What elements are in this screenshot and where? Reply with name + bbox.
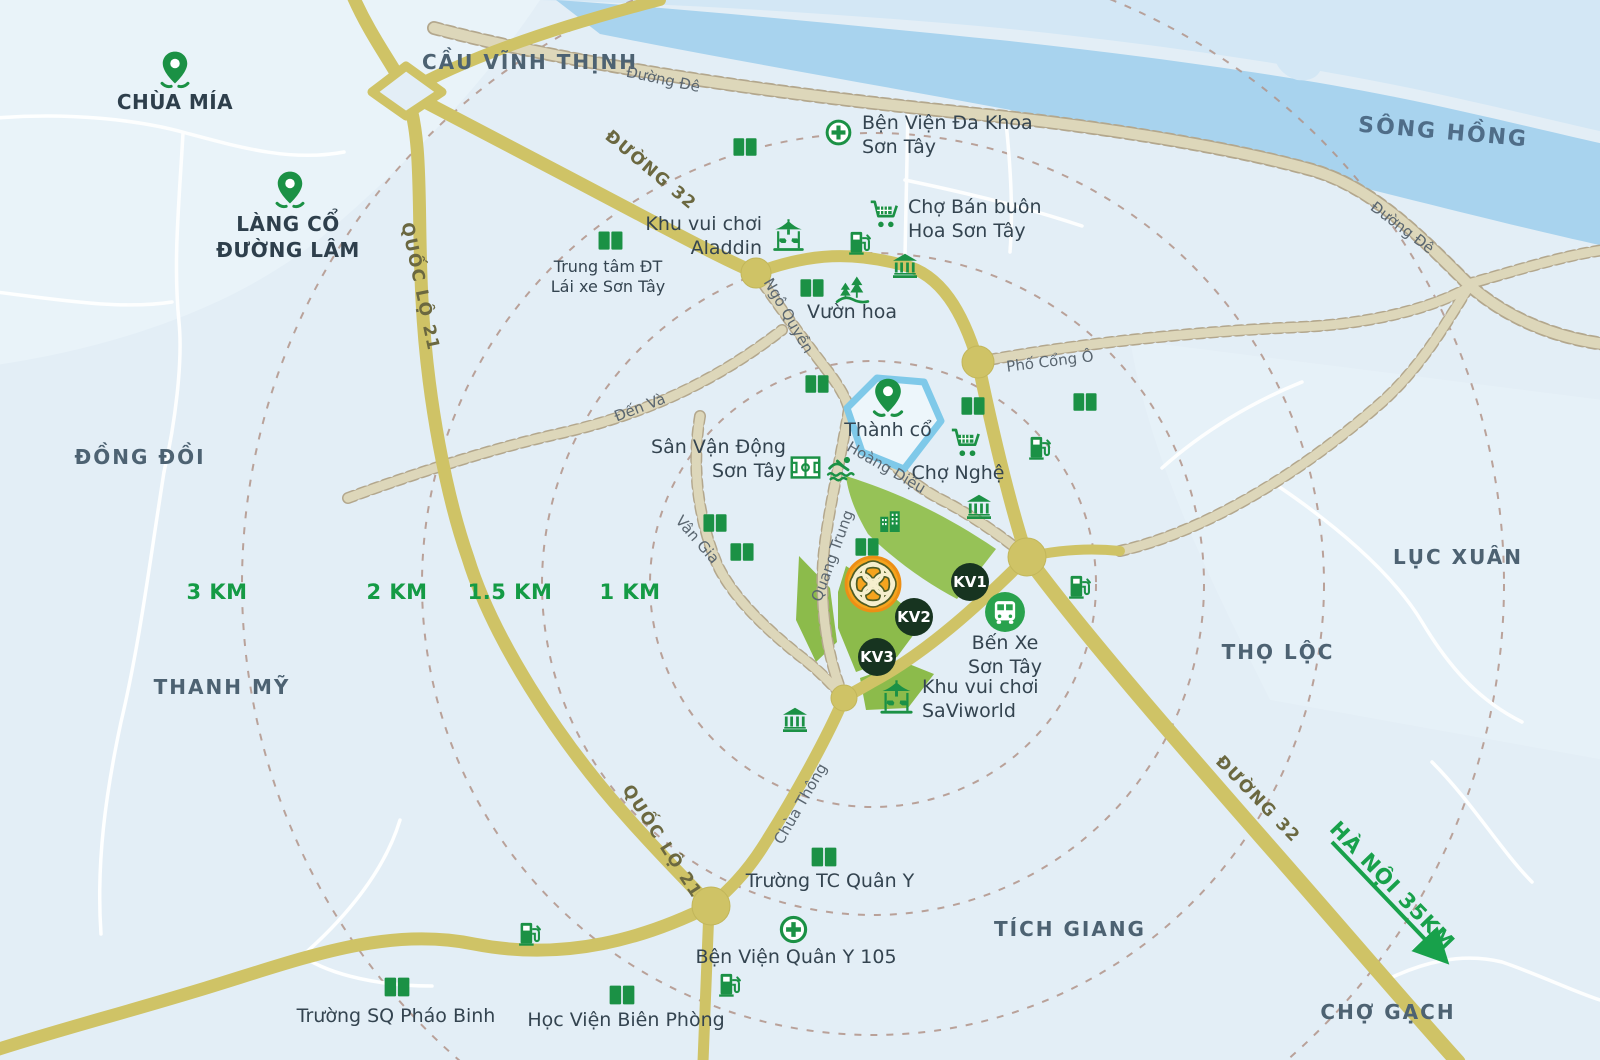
distance-label-1-km: 1 KM [599, 579, 660, 606]
book-icon[interactable] [701, 509, 729, 537]
hospital-icon-benh-vien-da-khoa[interactable] [823, 117, 854, 148]
book-icon-truong-tc-quan-y[interactable] [809, 842, 839, 872]
map-overlay: CHÙA MÍALÀNG CỔĐƯỜNG LÂMBện Viện Đa Khoa… [0, 0, 1600, 1060]
place-label-hoc-vien-bien-phong: Học Viện Biên Phòng [527, 1008, 724, 1032]
place-label-thanh-co: Thành cổ [844, 418, 932, 442]
bank-icon[interactable] [890, 251, 920, 281]
street-label-pho-cong-o: Phố Cổng Ô [1005, 347, 1094, 377]
road-label-quoc-lo-21-top: QUỐC LỘ 21 [395, 221, 444, 354]
distance-label-3-km: 3 KM [186, 579, 247, 606]
book-icon-hoc-vien-bien-phong[interactable] [607, 980, 637, 1010]
street-label-duong-de-top: Đường Đê [624, 63, 701, 97]
place-label-cho-ban-buon: Chợ Bán buônHoa Sơn Tây [908, 195, 1042, 244]
place-label-san-van-dong: Sân Vận ĐộngSơn Tây [651, 435, 786, 484]
bank-icon[interactable] [964, 492, 994, 522]
place-label-truong-sq-phao-binh: Trường SQ Pháo Binh [297, 1004, 496, 1028]
book-icon[interactable] [731, 133, 759, 161]
gas-icon[interactable] [1066, 572, 1095, 601]
pin-icon-thanh-co[interactable] [866, 376, 910, 420]
soccer-icon-san-van-dong[interactable] [788, 450, 823, 485]
gas-icon[interactable] [846, 228, 875, 257]
region-label-tho-loc: THỌ LỘC [1222, 640, 1335, 666]
region-label-tich-giang: TÍCH GIANG [994, 917, 1146, 943]
book-icon-trung-tam-dt-lai-xe[interactable] [596, 226, 625, 255]
street-label-duong-de-right: Đường Đê [1366, 198, 1437, 258]
distance-label-1.5-km: 1.5 KM [468, 579, 553, 606]
place-label-khu-vui-choi-aladdin: Khu vui chơiAladdin [645, 212, 762, 261]
project-logo-marker[interactable] [844, 555, 902, 613]
place-label-benh-vien-quan-y-105: Bện Viện Quân Y 105 [695, 945, 896, 969]
book-icon[interactable] [1071, 388, 1099, 416]
book-icon-truong-sq-phao-binh[interactable] [382, 972, 412, 1002]
road-label-quoc-lo-21-bottom: QUỐC LỘ 21 [616, 781, 706, 903]
gas-icon[interactable] [516, 919, 545, 948]
book-icon[interactable] [803, 370, 831, 398]
gas-icon[interactable] [716, 970, 745, 999]
cart-icon-cho-ban-buon[interactable] [868, 198, 901, 231]
region-label-dong-doi: ĐỒNG ĐỒI [74, 445, 205, 471]
road-label-duong-32-se: ĐƯỜNG 32 [1210, 752, 1304, 848]
building-icon[interactable] [875, 506, 905, 536]
distance-label-2-km: 2 KM [366, 579, 427, 606]
region-label-cau-vinh-thinh: CẦU VĨNH THỊNH [422, 50, 638, 76]
road-label-duong-32-top: ĐƯỜNG 32 [600, 126, 701, 215]
place-label-trung-tam-dt-lai-xe: Trung tâm ĐTLái xe Sơn Tây [551, 257, 666, 298]
hospital-icon-benh-vien-quan-y-105[interactable] [777, 913, 810, 946]
region-label-luc-xuan: LỤC XUÂN [1393, 545, 1523, 571]
place-label-vuon-hoa: Vườn hoa [807, 300, 897, 324]
place-label-lang-co-duong-lam: LÀNG CỔĐƯỜNG LÂM [216, 212, 360, 263]
pin-icon-chua-mia[interactable] [154, 49, 196, 91]
region-label-thanh-my: THANH MỸ [154, 675, 291, 701]
book-icon[interactable] [728, 538, 756, 566]
street-label-den-va: Đến Và [612, 389, 669, 426]
region-label-cho-gach: CHỢ GẠCH [1320, 1000, 1455, 1026]
book-icon[interactable] [959, 392, 987, 420]
place-label-truong-tc-quan-y: Trường TC Quân Y [746, 869, 915, 893]
place-label-benh-vien-da-khoa: Bện Viện Đa KhoaSơn Tây [862, 111, 1033, 160]
cart-icon-cho-nghe[interactable] [949, 426, 983, 460]
carousel-icon-saviworld[interactable] [877, 679, 916, 718]
street-label-chua-thong: Chùa Thông [770, 760, 832, 848]
place-label-chua-mia: CHÙA MÍA [117, 90, 233, 116]
zone-badge-kv3[interactable]: KV3 [858, 638, 896, 676]
book-icon[interactable] [798, 274, 826, 302]
region-label-song-hong: SÔNG HỒNG [1357, 112, 1529, 155]
carousel-icon-khu-vui-choi-aladdin[interactable] [770, 218, 807, 255]
bank-icon[interactable] [780, 705, 810, 735]
direction-label-hanoi-direction: HÀ NỘI 35KM [1324, 816, 1461, 956]
place-label-saviworld: Khu vui chơiSaViworld [922, 675, 1039, 724]
gas-icon[interactable] [1026, 433, 1055, 462]
zone-badge-kv1[interactable]: KV1 [951, 563, 989, 601]
bus-icon-ben-xe-son-tay[interactable] [984, 591, 1026, 633]
place-label-ben-xe-son-tay: Bến XeSơn Tây [968, 631, 1042, 680]
pin-icon-lang-co-duong-lam[interactable] [269, 169, 311, 211]
